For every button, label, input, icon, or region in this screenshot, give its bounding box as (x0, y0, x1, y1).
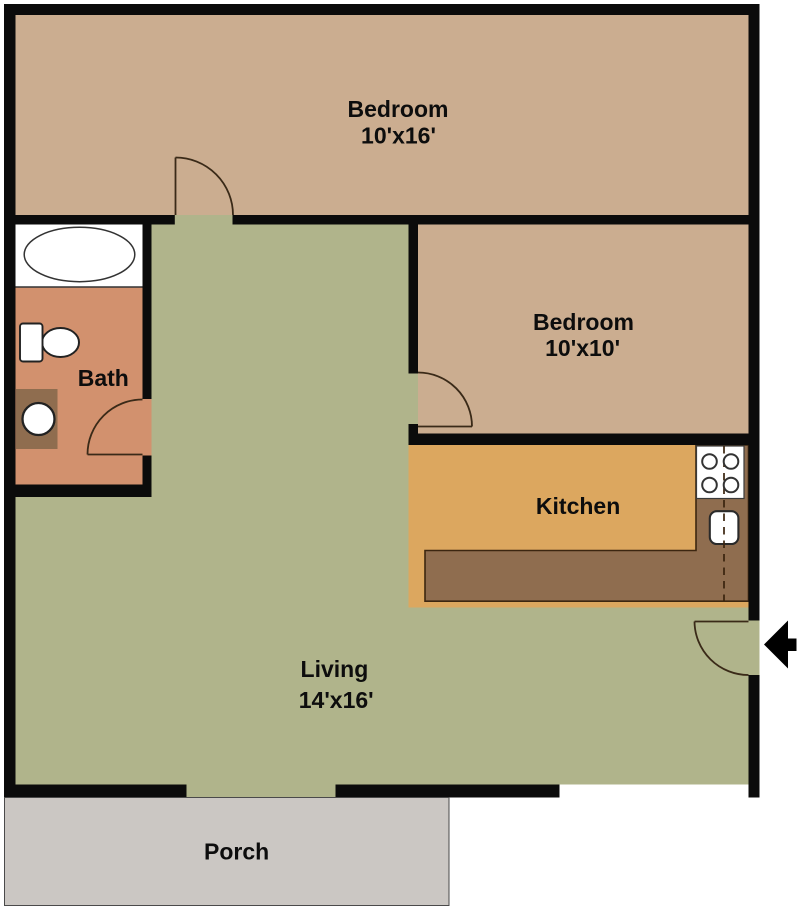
svg-text:10'x10': 10'x10' (545, 335, 620, 361)
svg-text:Bath: Bath (78, 365, 129, 391)
svg-text:Living: Living (301, 656, 369, 682)
svg-text:14'x16': 14'x16' (299, 687, 374, 713)
svg-text:10'x16': 10'x16' (361, 123, 436, 149)
svg-text:Bedroom: Bedroom (533, 309, 634, 335)
svg-text:Porch: Porch (204, 839, 269, 865)
svg-text:Kitchen: Kitchen (536, 493, 620, 519)
svg-text:Bedroom: Bedroom (348, 96, 449, 122)
